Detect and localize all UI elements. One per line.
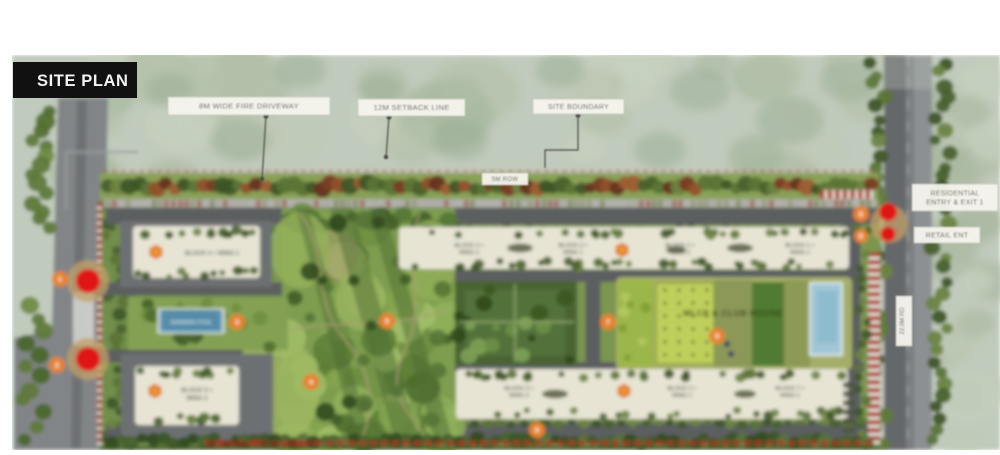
svg-text:SITE PLAN: SITE PLAN: [37, 72, 129, 90]
svg-text:RESIDENTIAL: RESIDENTIAL: [930, 191, 979, 198]
svg-text:SITE BOUNDARY: SITE BOUNDARY: [548, 104, 609, 111]
svg-text:12M SETBACK LINE: 12M SETBACK LINE: [373, 103, 449, 112]
svg-text:RETAIL ENT: RETAIL ENT: [926, 233, 969, 240]
svg-text:8M WIDE FIRE DRIVEWAY: 8M WIDE FIRE DRIVEWAY: [199, 102, 299, 111]
svg-text:22.0M RD: 22.0M RD: [900, 307, 906, 335]
svg-text:5M ROW: 5M ROW: [492, 177, 519, 183]
svg-text:ENTRY & EXIT 1: ENTRY & EXIT 1: [926, 200, 984, 207]
